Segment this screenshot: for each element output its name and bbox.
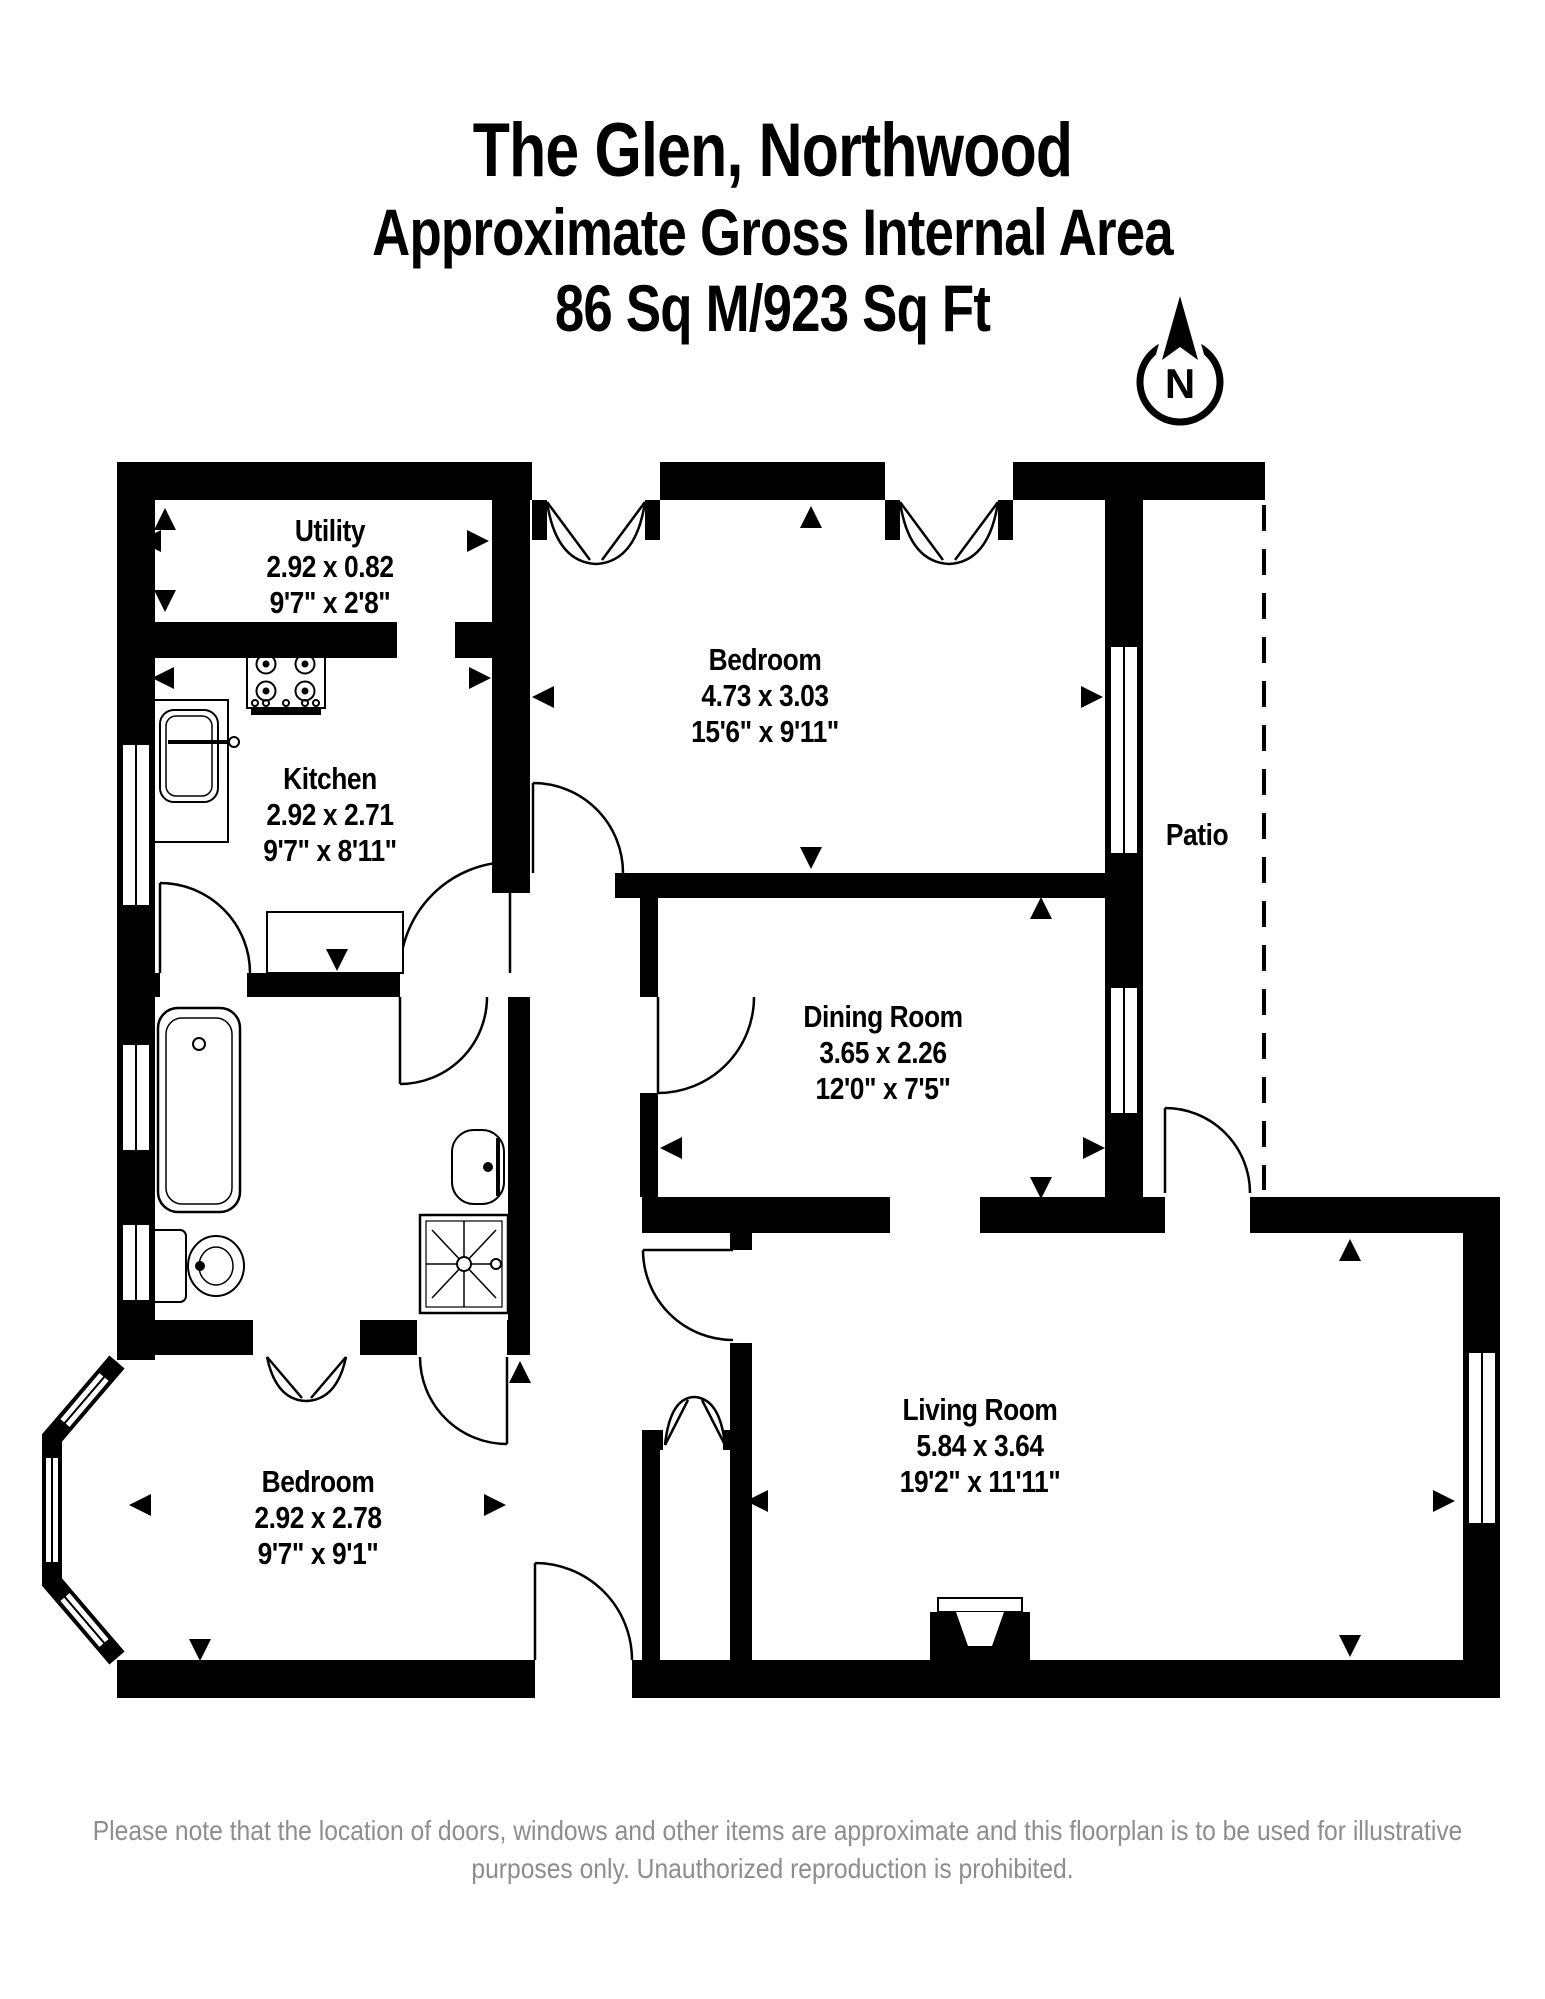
cupboard-doors-icon (665, 1397, 725, 1445)
window-bedroom1-top-b (885, 462, 1013, 500)
room-dims-metric: 3.65 x 2.26 (739, 1035, 1028, 1071)
dimension-arrow (1083, 1137, 1105, 1159)
casement-bedroom2-icon (267, 1357, 346, 1401)
fireplace-icon (930, 1598, 1030, 1660)
room-dims-imperial: 19'2" x 11'11" (836, 1464, 1125, 1500)
dimension-arrow (1433, 1490, 1455, 1512)
room-label-patio: Patio (1027, 817, 1367, 853)
room-name: Bedroom (174, 1464, 463, 1500)
window-bedroom1-top-a (532, 462, 660, 500)
room-label-kitchen: Kitchen 2.92 x 2.71 9'7" x 8'11" (160, 761, 500, 869)
room-dims-imperial: 15'6" x 9'11" (621, 714, 910, 750)
room-name: Patio (1053, 817, 1342, 853)
room-dims-imperial: 9'7" x 8'11" (186, 833, 475, 869)
room-dims-metric: 2.92 x 2.78 (174, 1500, 463, 1536)
door-kitchen-a (160, 883, 250, 973)
room-name: Bedroom (621, 642, 910, 678)
dimension-arrow (800, 506, 822, 528)
dimension-arrow (660, 1137, 682, 1159)
room-dims-imperial: 9'7" x 2'8" (186, 585, 475, 621)
wall-bathroom-bottom-b (360, 1320, 417, 1355)
door-bedroom2 (420, 1357, 507, 1444)
wall-kitchen-bottom-b (247, 973, 400, 997)
dimension-arrow (1081, 686, 1103, 708)
wall-bottom-right (632, 1660, 1500, 1698)
door-living (643, 1250, 733, 1340)
wall-utility-bottom (117, 622, 397, 658)
wall-living-left-stub (730, 1197, 752, 1250)
wall-dining-bottom (642, 1197, 890, 1233)
disclaimer: Please note that the location of doors, … (0, 1812, 1545, 1888)
casement-window-b-icon (900, 502, 998, 564)
wall-hall-dining-b (640, 1093, 658, 1197)
room-dims-imperial: 12'0" x 7'5" (739, 1071, 1028, 1107)
disclaimer-line-1: Please note that the location of doors, … (93, 1812, 1453, 1850)
room-label-bedroom2: Bedroom 2.92 x 2.78 9'7" x 9'1" (148, 1464, 488, 1572)
wall-cupboard-stub-right (723, 1430, 750, 1450)
wall-hall-dining-a (640, 893, 658, 997)
room-dims-metric: 5.84 x 3.64 (836, 1428, 1125, 1464)
wall-living-top-right (1250, 1197, 1500, 1233)
dimension-arrow (1030, 897, 1052, 919)
dimension-arrow (800, 847, 822, 869)
door-bathroom (400, 997, 487, 1084)
compass-label: N (1165, 360, 1195, 407)
room-label-living: Living Room 5.84 x 3.64 19'2" x 11'11" (810, 1392, 1150, 1500)
wall-cupboard-left (642, 1430, 660, 1660)
room-dims-metric: 2.92 x 0.82 (186, 549, 475, 585)
room-name: Kitchen (186, 761, 475, 797)
room-dims-metric: 4.73 x 3.03 (621, 678, 910, 714)
room-dims-metric: 2.92 x 2.71 (186, 797, 475, 833)
dimension-arrow (532, 686, 554, 708)
room-label-utility: Utility 2.92 x 0.82 9'7" x 2'8" (160, 513, 500, 621)
wall-dining-bottom-right (980, 1197, 1165, 1233)
toilet-icon (150, 1230, 244, 1302)
wall-bathroom-right (508, 997, 530, 1355)
room-label-dining: Dining Room 3.65 x 2.26 12'0" x 7'5" (713, 999, 1053, 1107)
dimension-arrow (1339, 1239, 1361, 1261)
dimension-arrow (509, 1361, 531, 1383)
wall-bedroom1-bottom (615, 873, 1143, 898)
wall-bathroom-bottom-c (507, 1320, 530, 1355)
floorplan-page: The Glen, Northwood Approximate Gross In… (0, 0, 1545, 1999)
room-name: Utility (186, 513, 475, 549)
disclaimer-line-2: purposes only. Unauthorized reproduction… (93, 1850, 1453, 1888)
room-name: Living Room (836, 1392, 1125, 1428)
door-patio (1165, 1108, 1250, 1193)
dimension-arrow (152, 667, 174, 689)
washbasin-icon (452, 1130, 504, 1204)
casement-window-a-icon (547, 502, 645, 564)
room-name: Dining Room (739, 999, 1028, 1035)
door-front-entrance (535, 1563, 632, 1660)
room-dims-imperial: 9'7" x 9'1" (174, 1536, 463, 1572)
shower-icon (420, 1215, 508, 1313)
door-bedroom1 (533, 783, 623, 873)
dimension-arrow (469, 667, 491, 689)
bathtub-icon (158, 1008, 240, 1212)
wall-bathroom-bottom-a (117, 1320, 253, 1355)
dimension-arrow (189, 1639, 211, 1661)
wall-cupboard-stub-left (642, 1430, 663, 1450)
wall-top (117, 462, 1265, 500)
dimension-arrow (1030, 1177, 1052, 1199)
dimension-arrow (1339, 1635, 1361, 1657)
wall-kitchen-bottom-a (117, 973, 160, 997)
room-label-bedroom1: Bedroom 4.73 x 3.03 15'6" x 9'11" (595, 642, 935, 750)
wall-bottom-left (117, 1660, 535, 1698)
compass-north-icon: N (1140, 292, 1220, 422)
bay-window (52, 1362, 117, 1658)
